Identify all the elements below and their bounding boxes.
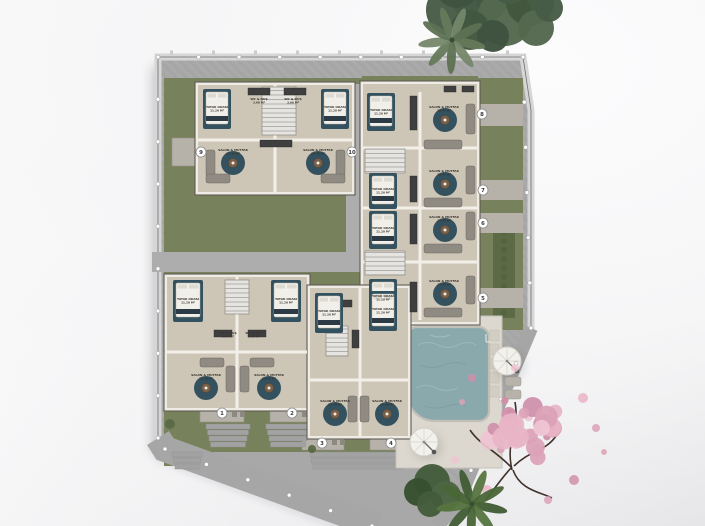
- fence-post: [156, 436, 160, 440]
- sofa: [466, 104, 475, 134]
- sofa: [466, 276, 475, 304]
- stairwell: [365, 149, 405, 173]
- sofa: [360, 396, 369, 422]
- site-plan-canvas: 12345678910 YATAK ODASI11.20 M²YATAK ODA…: [0, 0, 705, 526]
- sofa: [321, 174, 345, 183]
- sofa: [424, 198, 462, 207]
- sofa: [424, 140, 462, 149]
- fence-post: [525, 191, 529, 195]
- fence-post: [526, 236, 530, 240]
- fence-post: [156, 309, 160, 313]
- fence-post: [204, 462, 208, 466]
- counter: [352, 330, 359, 348]
- fence-post: [522, 100, 526, 104]
- fence-post: [359, 55, 363, 59]
- fence-post: [156, 224, 160, 228]
- svg-text:9: 9: [199, 150, 203, 156]
- swimming-pool: [407, 327, 489, 421]
- unit-number-badge: 6: [478, 218, 488, 228]
- counter: [260, 140, 292, 147]
- counter: [410, 176, 417, 202]
- counter: [248, 88, 270, 95]
- unit-number-badge: 2: [287, 408, 297, 418]
- fence-post: [287, 493, 291, 497]
- svg-text:4: 4: [389, 441, 393, 447]
- fence-post: [156, 351, 160, 355]
- sofa: [424, 308, 462, 317]
- unit-number-badge: 1: [217, 408, 227, 418]
- fence-post: [156, 97, 160, 101]
- svg-text:10: 10: [348, 150, 356, 156]
- center-walkway: [152, 252, 367, 272]
- sofa: [206, 150, 215, 176]
- sofa: [336, 150, 345, 176]
- counter: [410, 96, 417, 130]
- fence-post: [163, 447, 167, 451]
- fence-post: [197, 55, 201, 59]
- fence-post: [529, 326, 533, 330]
- svg-text:6: 6: [481, 221, 485, 227]
- sofa: [226, 366, 235, 392]
- site-plan-render: 12345678910 YATAK ODASI11.20 M²YATAK ODA…: [0, 0, 705, 526]
- fence-post: [237, 55, 241, 59]
- umbrella-icon: [410, 428, 438, 456]
- fence-post: [156, 182, 160, 186]
- sofa: [466, 166, 475, 194]
- counter: [284, 88, 306, 95]
- svg-text:5: 5: [481, 296, 485, 302]
- sofa: [250, 358, 274, 367]
- unit-number-badge: 10: [347, 147, 357, 157]
- unit-number-badge: 5: [478, 293, 488, 303]
- fence-post: [156, 140, 160, 144]
- unit-number-badge: 7: [478, 185, 488, 195]
- sun-lounger: [505, 390, 521, 399]
- fence-post: [480, 55, 484, 59]
- counter: [410, 282, 417, 312]
- svg-text:2: 2: [290, 411, 294, 417]
- sofa: [466, 212, 475, 240]
- fence-post: [521, 55, 525, 59]
- fence-post: [528, 281, 532, 285]
- counter: [410, 214, 417, 244]
- sofa: [424, 244, 462, 253]
- sun-lounger: [505, 377, 521, 386]
- sofa: [200, 358, 224, 367]
- counter: [462, 86, 474, 92]
- fence-post: [156, 267, 160, 271]
- fence-post: [318, 55, 322, 59]
- entry-porch: [172, 138, 198, 166]
- counter: [444, 86, 456, 92]
- fence-post: [469, 468, 473, 472]
- svg-text:1: 1: [220, 411, 224, 417]
- fence-post: [246, 478, 250, 482]
- sofa: [240, 366, 249, 392]
- fence-post: [156, 55, 160, 59]
- unit-number-badge: 3: [317, 438, 327, 448]
- svg-text:3: 3: [320, 441, 324, 447]
- fence-post: [156, 394, 160, 398]
- fence-post: [278, 55, 282, 59]
- stairwell: [225, 280, 249, 314]
- unit-number-badge: 9: [196, 147, 206, 157]
- fence-post: [329, 509, 333, 513]
- svg-text:7: 7: [481, 188, 485, 194]
- sofa: [206, 174, 230, 183]
- fence-post: [399, 55, 403, 59]
- fence-post: [524, 145, 528, 149]
- stairwell: [365, 251, 405, 275]
- unit-number-badge: 8: [477, 109, 487, 119]
- unit-number-badge: 4: [386, 438, 396, 448]
- svg-text:8: 8: [480, 112, 484, 118]
